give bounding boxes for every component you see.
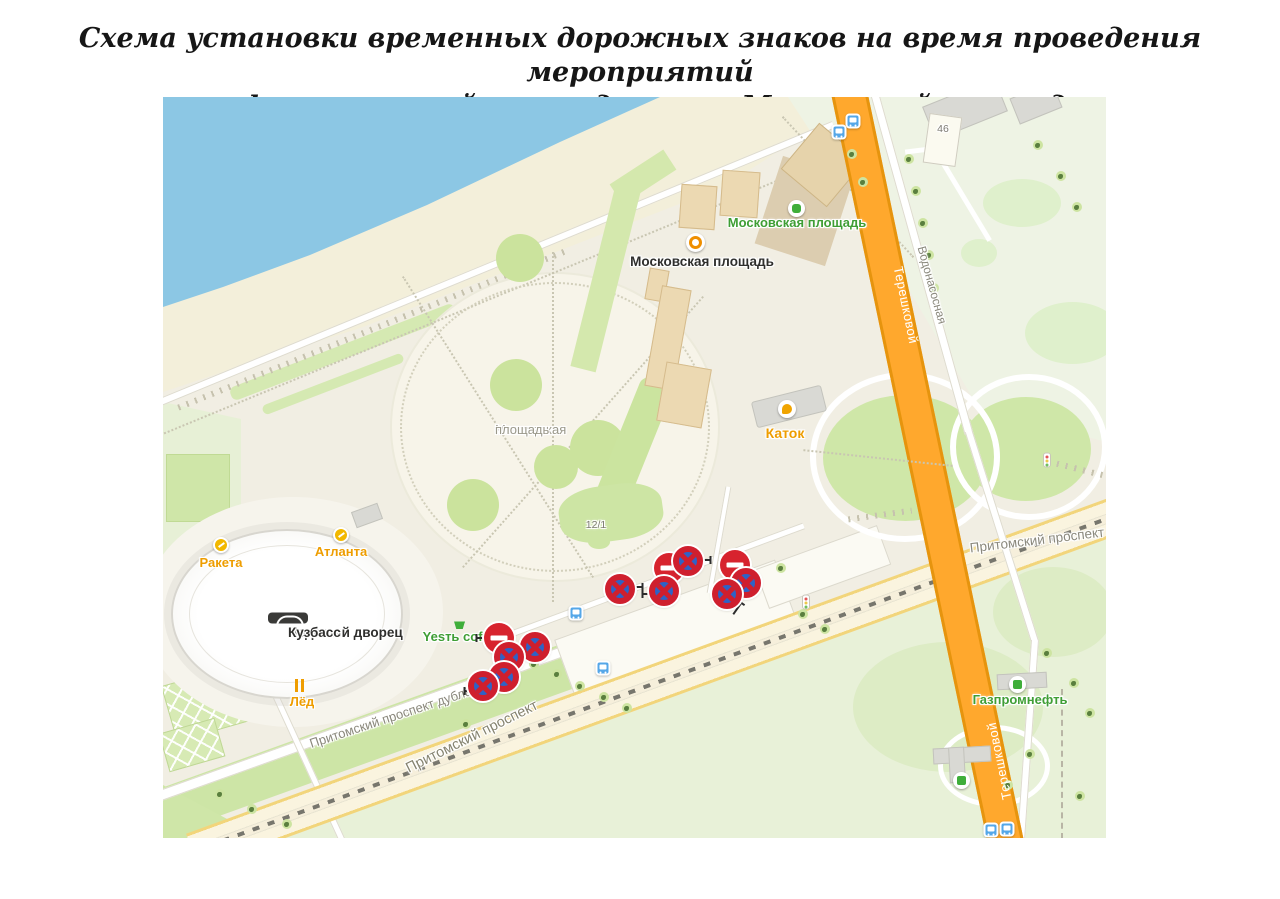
traffic-light-icon <box>802 595 810 610</box>
tree-icon <box>1075 791 1085 801</box>
no-stopping-sign <box>520 632 550 662</box>
atlanta-attraction-icon <box>333 527 349 543</box>
tree-icon <box>798 609 808 619</box>
tree-icon <box>247 804 257 814</box>
tree-icon <box>911 186 921 196</box>
label-raketa: Ракета <box>200 555 243 570</box>
bus-stop-icon <box>569 606 584 621</box>
lawn-circle <box>490 359 542 411</box>
label-led: Лёд <box>290 694 315 709</box>
tree-icon <box>552 669 562 679</box>
label-house-12-1: 12/1 <box>586 519 606 531</box>
lawn-circle <box>534 445 578 489</box>
fuel-station-icon <box>953 772 970 789</box>
bus-stop-icon <box>1000 822 1015 837</box>
tree-icon <box>1069 678 1079 688</box>
lawn-blob <box>993 567 1106 657</box>
tree-icon <box>918 218 928 228</box>
bus-stop-icon <box>596 661 611 676</box>
lawn-patch <box>588 535 610 549</box>
lawn-circle <box>447 479 499 531</box>
tree-icon <box>575 681 585 691</box>
no-stopping-sign <box>673 546 703 576</box>
tree-icon <box>1025 749 1035 759</box>
stadium-icon <box>268 613 308 624</box>
tree-icon <box>858 177 868 187</box>
tree-icon <box>1033 140 1043 150</box>
no-stopping-sign <box>468 671 498 701</box>
lawn-blob <box>961 239 997 267</box>
grocery-basket-icon <box>453 619 466 629</box>
tree-icon <box>1085 708 1095 718</box>
bus-stop-icon <box>846 114 861 129</box>
title-line-1: Схема установки временных дорожных знако… <box>0 22 1280 90</box>
lawn-circle <box>496 234 544 282</box>
label-katok: Каток <box>766 425 805 441</box>
bus-stop-icon <box>832 125 847 140</box>
building <box>719 170 760 219</box>
no-stopping-sign <box>605 574 635 604</box>
tree-icon <box>599 692 609 702</box>
tree-icon <box>904 154 914 164</box>
path-dashed <box>1061 689 1063 838</box>
tree-icon <box>847 149 857 159</box>
building <box>679 184 718 230</box>
building-46 <box>923 113 963 167</box>
tree-icon <box>1056 171 1066 181</box>
tree-icon <box>1072 202 1082 212</box>
no-stopping-sign <box>712 579 742 609</box>
ice-skate-icon <box>778 400 796 418</box>
tree-icon <box>622 703 632 713</box>
label-gazprom: Газпромнефть <box>973 692 1068 707</box>
tree-icon <box>820 624 830 634</box>
fuel-station-icon <box>1009 676 1026 693</box>
traffic-light-icon <box>1043 453 1051 468</box>
tree-icon <box>461 719 471 729</box>
label-atlanta: Атланта <box>315 544 367 559</box>
label-line: Кузбасс <box>288 625 341 640</box>
no-stopping-sign <box>649 576 679 606</box>
tree-icon <box>1042 648 1052 658</box>
map-canvas: Московская площадь Московская площадь Мо… <box>163 97 1106 838</box>
bus-stop-icon <box>984 823 999 838</box>
page: Схема установки временных дорожных знако… <box>0 0 1280 899</box>
label-moskovskaya-square-transit: Московская площадь <box>728 215 866 230</box>
label-house-46: 46 <box>937 123 949 135</box>
raketa-attraction-icon <box>213 537 229 553</box>
label-moskovskaya-square: Московская площадь <box>630 254 774 269</box>
label-line: площадь <box>495 422 549 438</box>
lawn-blob <box>983 179 1061 227</box>
tree-icon <box>215 789 225 799</box>
tree-icon <box>776 563 786 573</box>
landmark-icon <box>686 233 705 252</box>
tree-icon <box>282 819 292 829</box>
restaurant-icon <box>294 679 305 692</box>
